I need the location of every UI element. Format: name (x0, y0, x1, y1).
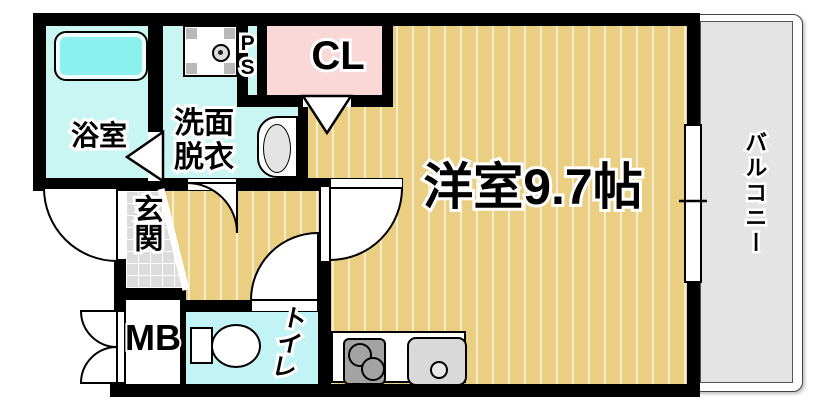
drain-icon (212, 44, 230, 62)
sink-drain-icon (430, 361, 448, 379)
wall-top (33, 13, 700, 26)
main-room-label: 洋室9.7帖 (373, 160, 693, 215)
bathtub (54, 31, 148, 81)
wash-basin (257, 116, 298, 178)
meter-box-label: MB (124, 318, 182, 358)
wall-toilet-north (180, 300, 251, 312)
pan-corner (224, 63, 235, 74)
wall-bottom (110, 384, 700, 397)
washing-machine-pan (183, 25, 238, 77)
washroom-label: 洗面 脱衣 (146, 107, 262, 175)
closet-door-opening (303, 95, 351, 107)
basin-bowl (263, 124, 291, 173)
room-door-leaf (319, 185, 331, 263)
outside-area (33, 191, 114, 397)
wall-mb-north (126, 288, 186, 300)
closet-label: CL (290, 34, 386, 78)
wall-hall-room (318, 262, 331, 312)
wall-wash-south (237, 178, 330, 191)
wall-toilet-east (318, 312, 331, 384)
kitchen-counter (331, 331, 466, 383)
toilet-bowl (211, 324, 261, 368)
burner-icon (361, 357, 385, 381)
pan-corner (186, 63, 197, 74)
pan-corner (186, 28, 197, 39)
kitchen-sink (407, 337, 467, 386)
wall-wash-south (163, 178, 187, 191)
pan-corner (224, 28, 235, 39)
entrance-door-opening (114, 191, 126, 259)
balcony-label: バルコニー (742, 131, 766, 276)
bathroom-label: 浴室 (40, 121, 158, 152)
floor-plan: 浴室 洗面 脱衣 PS CL 洋室9.7帖 バルコニー 玄関 MB トイレ (0, 0, 834, 406)
stove-icon (343, 338, 386, 385)
washroom-door-threshold (187, 178, 237, 191)
wall-wash-east (298, 107, 308, 178)
entrance-label: 玄関 (129, 194, 161, 274)
pipe-space-label: PS (236, 32, 259, 94)
wall-west-upper (33, 13, 46, 191)
wall-bath-south (33, 178, 163, 191)
toilet-tank (190, 327, 213, 364)
